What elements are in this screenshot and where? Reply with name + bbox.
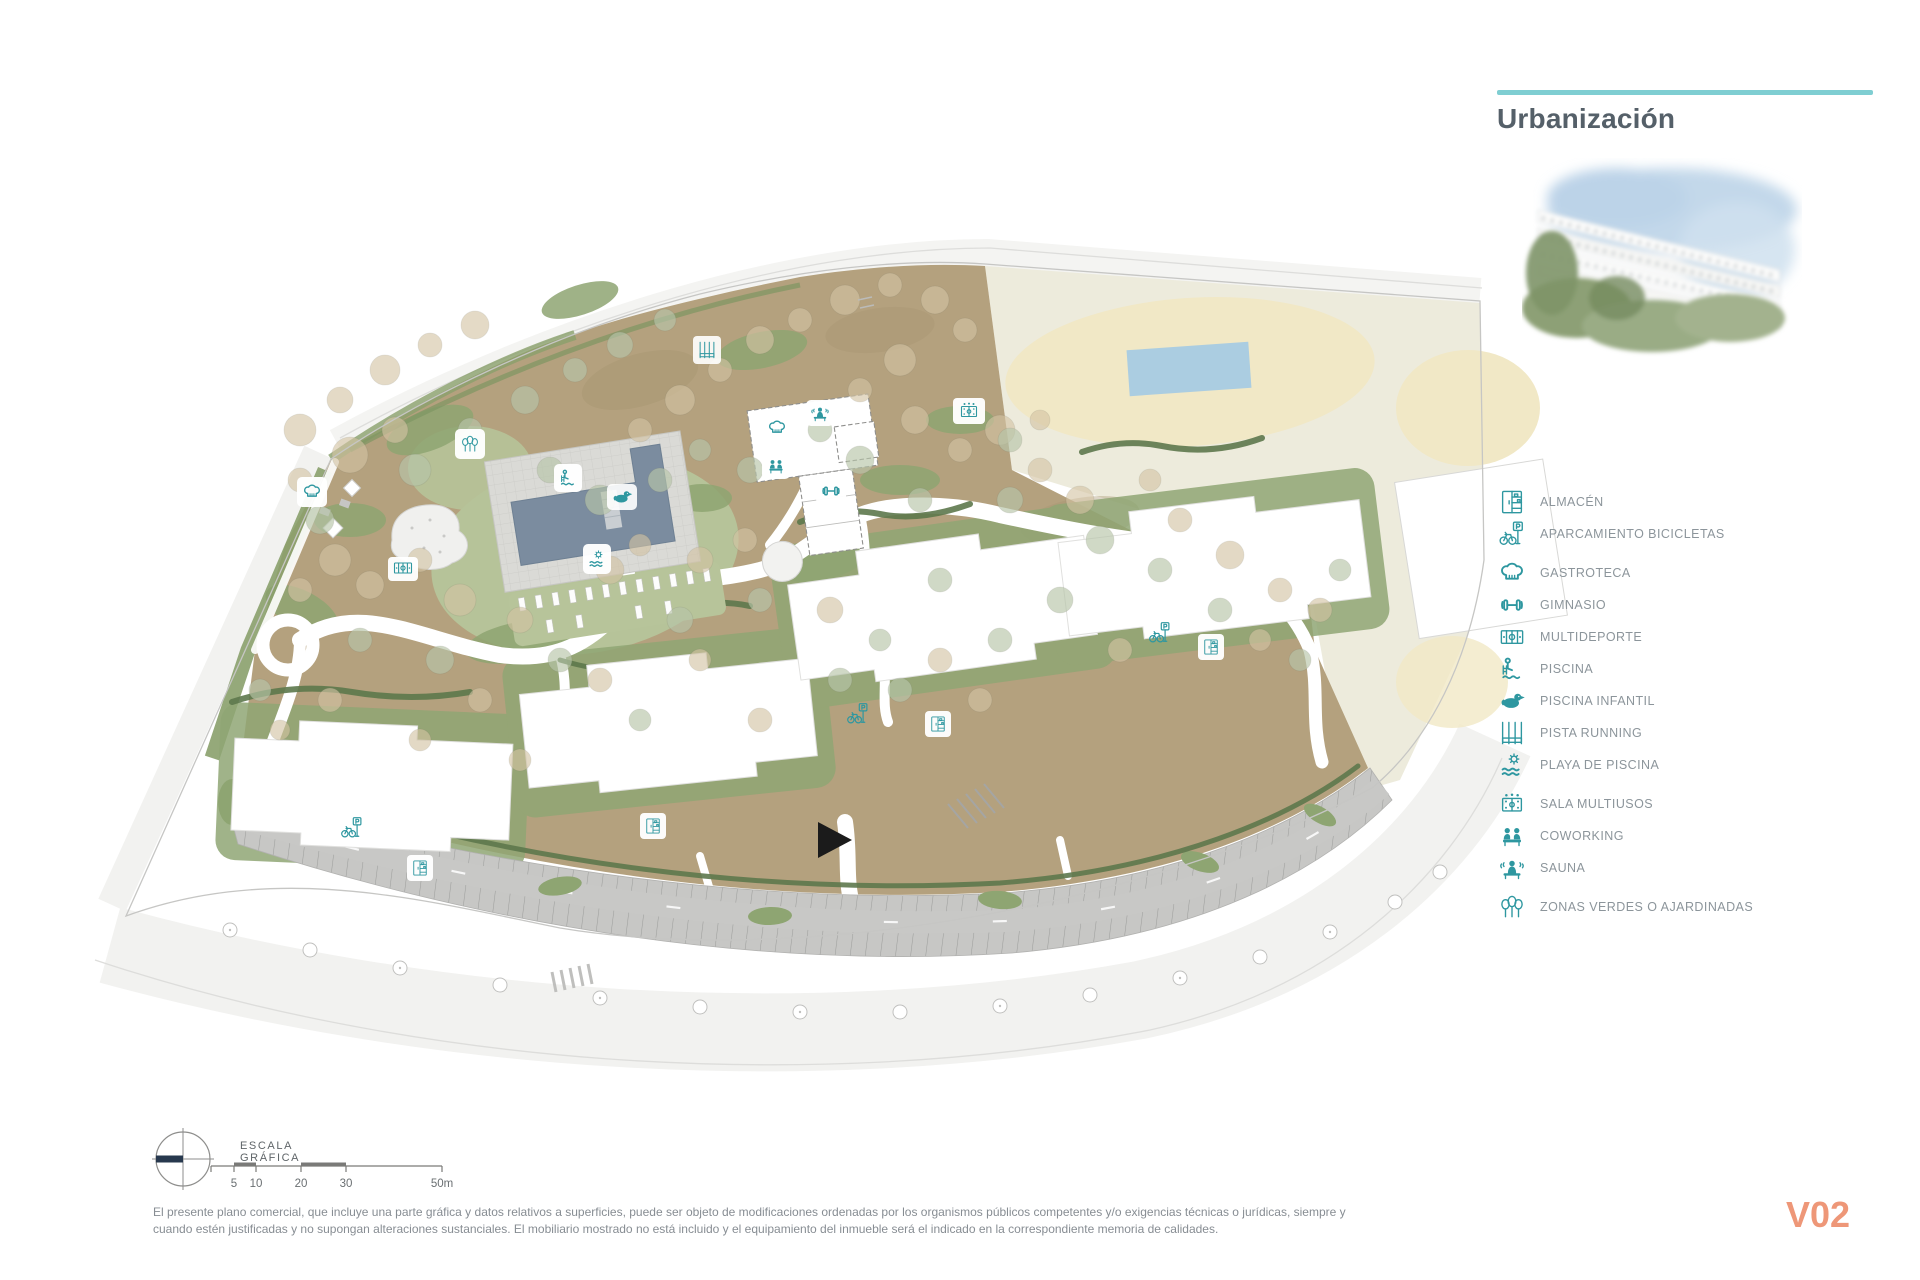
accent-line	[1497, 90, 1873, 95]
scale-tick: 5	[231, 1178, 237, 1190]
map-marker-gimnasio	[816, 478, 846, 504]
storage-icon	[1497, 487, 1527, 517]
map-marker-gastroteca	[763, 414, 791, 442]
sports-court-icon	[1497, 622, 1527, 652]
map-marker-almacen-1	[407, 855, 433, 881]
trees-icon	[1497, 892, 1527, 922]
legend-label: PISTA RUNNING	[1540, 726, 1642, 740]
running-track-icon	[1497, 718, 1527, 748]
legend-item-pista-running: PISTA RUNNING	[1497, 717, 1897, 749]
map-marker-gastroteca-picnic	[297, 477, 327, 507]
map-marker-piscina-infantil	[607, 484, 637, 510]
legend-label: APARCAMIENTO BICICLETAS	[1540, 527, 1725, 541]
pool-icon	[1497, 654, 1527, 684]
map-marker-piscina	[554, 464, 582, 492]
disclaimer-text: El presente plano comercial, que incluye…	[153, 1204, 1413, 1237]
map-marker-zonas-verdes	[455, 429, 485, 459]
legend-item-zonas-verdes: ZONAS VERDES O AJARDINADAS	[1497, 891, 1897, 923]
scale-tick: 50m	[431, 1178, 453, 1190]
map-marker-almacen-3	[925, 711, 951, 737]
map-marker-pista-running	[693, 336, 721, 364]
legend-item-almacen: ALMACÉN	[1497, 486, 1897, 518]
legend-label: COWORKING	[1540, 829, 1624, 843]
map-marker-almacen-4	[1198, 634, 1224, 660]
map-marker-almacen-2	[640, 813, 666, 839]
sun-waves-icon	[1497, 750, 1527, 780]
map-marker-playa-piscina	[583, 544, 611, 574]
legend-label: GIMNASIO	[1540, 598, 1606, 612]
multiuse-room-icon	[1497, 789, 1527, 819]
legend-item-sala-multiusos: SALA MULTIUSOS	[1497, 788, 1897, 820]
legend: ALMACÉN APARCAMIENTO BICICLETAS GASTROTE…	[1497, 486, 1897, 923]
legend-label: ALMACÉN	[1540, 495, 1604, 509]
legend-label: MULTIDEPORTE	[1540, 630, 1642, 644]
scale-ruler	[210, 1158, 460, 1174]
sauna-icon	[1497, 853, 1527, 883]
legend-item-aparcamiento-bicicletas: APARCAMIENTO BICICLETAS	[1497, 518, 1897, 550]
site-plan-page: Urbanización ALMACÉN APARCAMIENTO BICICL…	[0, 0, 1920, 1280]
disclaimer-line-2: cuando estén justificadas y no supongan …	[153, 1221, 1413, 1238]
legend-label: SALA MULTIUSOS	[1540, 797, 1653, 811]
map-marker-multideporte	[388, 557, 418, 581]
disclaimer-line-1: El presente plano comercial, que incluye…	[153, 1204, 1413, 1221]
scale-tick: 30	[340, 1178, 353, 1190]
map-marker-coworking	[762, 453, 790, 479]
legend-label: SAUNA	[1540, 861, 1585, 875]
legend-label: GASTROTECA	[1540, 566, 1631, 580]
map-marker-sauna	[806, 400, 834, 426]
legend-item-playa-de-piscina: PLAYA DE PISCINA	[1497, 749, 1897, 781]
scale-tick: 20	[295, 1178, 308, 1190]
chef-hat-icon	[1497, 558, 1527, 588]
legend-item-piscina: PISCINA	[1497, 653, 1897, 685]
legend-item-multideporte: MULTIDEPORTE	[1497, 621, 1897, 653]
legend-item-piscina-infantil: PISCINA INFANTIL	[1497, 685, 1897, 717]
bike-parking-icon	[1497, 519, 1527, 549]
map-marker-sala-multiusos	[953, 398, 985, 424]
neighbor-pool	[1127, 342, 1252, 396]
page-title: Urbanización	[1497, 103, 1675, 135]
plan-version-label: V02	[1786, 1194, 1850, 1236]
scale-tick: 10	[250, 1178, 263, 1190]
dumbbell-icon	[1497, 590, 1527, 620]
legend-label: PISCINA INFANTIL	[1540, 694, 1655, 708]
legend-item-gastroteca: GASTROTECA	[1497, 557, 1897, 589]
legend-label: ZONAS VERDES O AJARDINADAS	[1540, 900, 1753, 914]
legend-label: PLAYA DE PISCINA	[1540, 758, 1659, 772]
building-rendering	[1522, 158, 1802, 368]
duck-float-icon	[1497, 686, 1527, 716]
coworking-icon	[1497, 821, 1527, 851]
legend-item-sauna: SAUNA	[1497, 852, 1897, 884]
north-indicator	[150, 1126, 216, 1192]
legend-label: PISCINA	[1540, 662, 1593, 676]
legend-item-coworking: COWORKING	[1497, 820, 1897, 852]
legend-item-gimnasio: GIMNASIO	[1497, 589, 1897, 621]
